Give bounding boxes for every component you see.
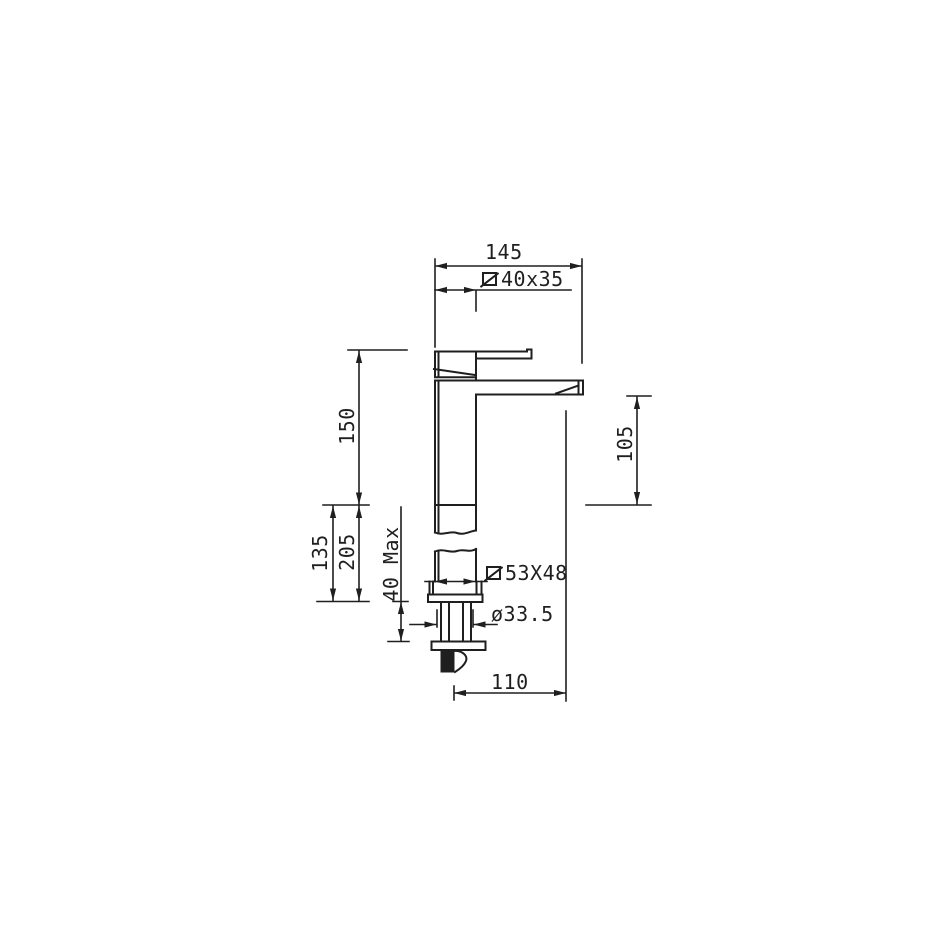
body-break-lower [435, 549, 476, 552]
arrowhead [464, 287, 476, 293]
dim-label-135: 135 [310, 534, 330, 572]
dimension-lines [317, 259, 651, 701]
dim-label-40x35: 40x35 [482, 269, 564, 289]
square-section-icon [482, 272, 497, 286]
arrowhead [398, 629, 404, 641]
arrowhead [474, 621, 486, 627]
dim-110-lines [454, 411, 566, 701]
arrowhead [398, 602, 404, 614]
dim-label-145: 145 [485, 242, 523, 262]
supply-hose [453, 651, 466, 672]
arrowhead [435, 287, 447, 293]
arrowhead [425, 621, 437, 627]
square-section-icon [486, 566, 501, 580]
dim-label-40max: 40 Max [381, 526, 401, 601]
arrowhead [356, 589, 362, 601]
arrowhead [634, 397, 640, 409]
body-column-upper [435, 381, 476, 533]
arrowhead [634, 492, 640, 504]
base-flange [428, 582, 483, 603]
arrowhead [554, 690, 566, 696]
handle-lever [435, 350, 532, 359]
dim-label-33-5: ø33.5 [491, 604, 554, 624]
handle-base [434, 352, 476, 381]
arrowhead [435, 578, 447, 584]
dim-label-105: 105 [615, 425, 635, 463]
mounting-washer [432, 642, 486, 651]
arrowhead [454, 690, 466, 696]
arrowhead [356, 506, 362, 518]
dim-label-53x48: 53X48 [486, 563, 568, 583]
body-column-lower [435, 549, 476, 582]
dim-label-205: 205 [337, 533, 357, 571]
dim-label-110: 110 [491, 672, 529, 692]
dim-40x35-lines [435, 290, 571, 311]
arrowhead [330, 506, 336, 518]
arrowhead [330, 589, 336, 601]
threaded-shank [441, 602, 471, 642]
arrowhead [464, 578, 476, 584]
dim-label-40x35-text: 40x35 [501, 267, 564, 291]
body-break-upper [435, 531, 476, 534]
dim-label-53x48-text: 53X48 [505, 561, 568, 585]
drawing-page: 145 40x35 150 105 135 205 40 Max 53X48 ø… [0, 0, 950, 950]
mounting-bolt [442, 650, 454, 672]
dim-label-150: 150 [337, 407, 357, 445]
arrowhead [435, 263, 447, 269]
arrowhead [356, 493, 362, 505]
arrowhead [356, 351, 362, 363]
dimension-arrowheads [330, 263, 640, 696]
spout [435, 381, 583, 395]
technical-drawing-canvas [0, 0, 950, 950]
arrowhead [570, 263, 582, 269]
